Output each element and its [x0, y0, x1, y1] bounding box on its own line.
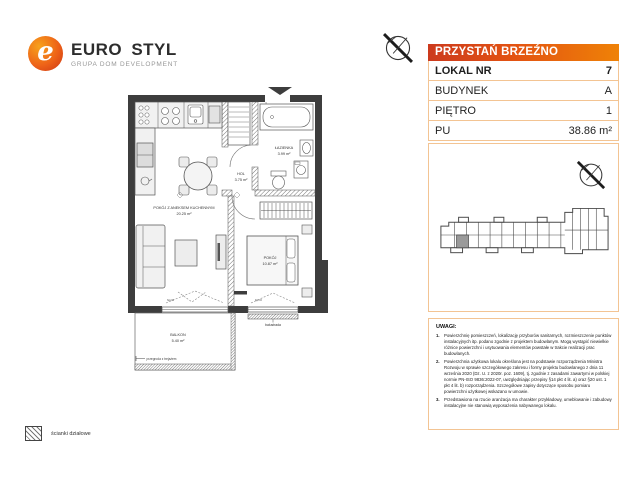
legend: ścianki działowe [25, 426, 91, 441]
north-arrow-icon [381, 31, 415, 65]
building-floor-keyplan [435, 202, 612, 266]
bathtub-icon [260, 104, 313, 130]
tv-cabinet [216, 235, 226, 269]
table-row-lokal: LOKAL NR 7 [428, 61, 619, 81]
room-label: POKÓJ Z ANEKSEM KUCHENNYM [153, 205, 214, 210]
notes-title: UWAGI: [436, 324, 612, 330]
note-number: 1. [436, 333, 444, 357]
brand-logo: e EURO STYL GRUPA DOM DEVELOPMENT [28, 36, 178, 71]
partition-screen-annotation: przegroda z trejażem [136, 356, 177, 361]
note-number: 2. [436, 359, 444, 396]
row-value: 38.86 m² [569, 125, 612, 137]
room-label: ŁAZIENKA [275, 146, 294, 150]
note-item: 2. Powierzchnia użytkowa lokalu określon… [436, 359, 612, 396]
coffee-table [175, 240, 197, 266]
note-text: Powierzchnia użytkowa lokalu określona j… [444, 359, 612, 396]
row-value: 7 [606, 65, 612, 77]
bed [247, 236, 298, 285]
room-label: HOL [237, 172, 245, 176]
dining-table [179, 157, 217, 195]
logo-letter: e [37, 39, 54, 65]
entrance-marker-icon [268, 87, 292, 95]
nightstand [302, 288, 312, 297]
project-title: PRZYSTAŃ BRZEŹNO [428, 44, 619, 61]
radiator [234, 291, 247, 295]
balcony [135, 313, 235, 370]
hall-wardrobe [228, 102, 250, 145]
room-area: 10.87 m² [263, 262, 279, 266]
room-label: BALKON [170, 333, 186, 337]
row-value: A [605, 85, 612, 97]
apartment-card-page: { "brand": { "name": "EURO STYL", "tagli… [0, 0, 640, 480]
room-area: 5.40 m² [172, 339, 186, 343]
legend-label: ścianki działowe [51, 431, 91, 437]
brand-name: EURO STYL [71, 40, 178, 60]
partition-hatch-swatch-icon [25, 426, 42, 441]
kitchen-appliance [209, 106, 220, 123]
brand-tagline: GRUPA DOM DEVELOPMENT [71, 61, 178, 68]
note-text: Powierzchnię pomieszczeń, lokalizację pr… [444, 333, 612, 357]
note-item: 3. Przedstawiona na rzucie aranżacja ma … [436, 397, 612, 409]
balustrade-strip [248, 314, 298, 319]
wardrobe [260, 202, 312, 219]
washing-machine-icon [294, 161, 308, 178]
building-keyplan-panel [428, 143, 619, 312]
table-row-budynek: BUDYNEK A [428, 81, 619, 101]
row-label: PU [435, 125, 450, 137]
table-row-pietro: PIĘTRO 1 [428, 101, 619, 121]
sofa [136, 225, 165, 288]
sill-height-label: hp=0 [255, 298, 262, 302]
row-label: PIĘTRO [435, 105, 476, 117]
apartment-floor-plan: hp=0 hp=0 balustrada przegroda z trejaże… [120, 85, 340, 385]
eurostyl-logo-icon: e [28, 36, 63, 71]
note-text: Przedstawiona na rzucie aranżacja ma cha… [444, 397, 612, 409]
room-area: 20.25 m² [177, 212, 193, 216]
room-label: POKÓJ [264, 255, 277, 260]
row-label: BUDYNEK [435, 85, 488, 97]
highlighted-unit [457, 235, 469, 248]
row-label: LOKAL NR [435, 65, 492, 77]
room-area: 3.99 m² [278, 152, 292, 156]
nightstand [302, 225, 312, 234]
sill-height-label: hp=0 [167, 298, 174, 302]
note-number: 3. [436, 397, 444, 409]
bathroom-sink-icon [300, 140, 313, 156]
kitchen-sink-icon [188, 105, 203, 124]
row-value: 1 [606, 105, 612, 117]
north-arrow-icon [575, 159, 607, 191]
svg-text:przegroda z trejażem: przegroda z trejażem [147, 357, 177, 361]
toilet-icon [271, 171, 286, 189]
balustrade-label: balustrada [265, 323, 281, 327]
note-item: 1. Powierzchnię pomieszczeń, lokalizację… [436, 333, 612, 357]
apartment-info-table: PRZYSTAŃ BRZEŹNO LOKAL NR 7 BUDYNEK A PI… [428, 44, 619, 141]
notes-panel: UWAGI: 1. Powierzchnię pomieszczeń, loka… [428, 318, 619, 430]
fridge-icon [137, 143, 153, 167]
brand-text: EURO STYL GRUPA DOM DEVELOPMENT [71, 40, 178, 68]
table-row-pu: PU 38.86 m² [428, 121, 619, 141]
room-area: 3.75 m² [235, 178, 249, 182]
